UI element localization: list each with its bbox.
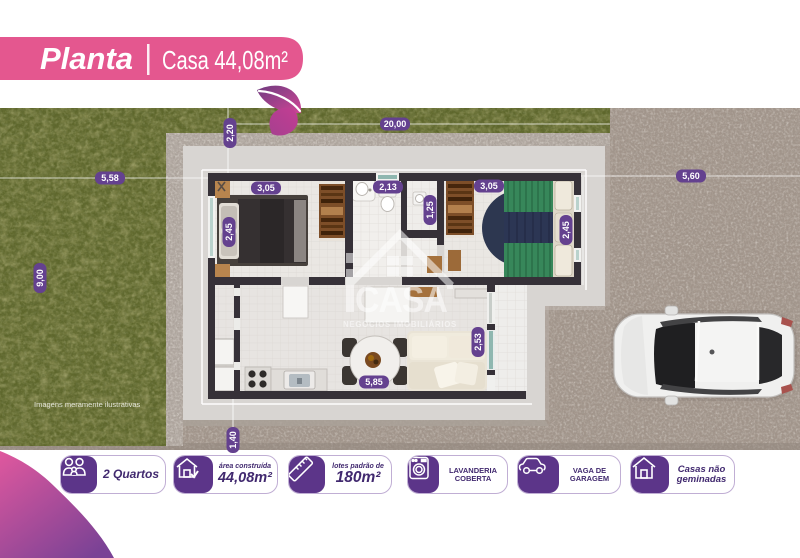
svg-text:NEGÓCIOS IMOBILIÁRIOS: NEGÓCIOS IMOBILIÁRIOS	[343, 318, 457, 329]
svg-text:5,85: 5,85	[365, 377, 383, 387]
svg-text:2,45: 2,45	[561, 221, 571, 239]
svg-text:1,25: 1,25	[425, 201, 435, 219]
svg-text:2,13: 2,13	[379, 182, 397, 192]
svg-text:1,40: 1,40	[228, 431, 238, 449]
svg-text:5,58: 5,58	[101, 173, 119, 183]
svg-text:3,05: 3,05	[480, 181, 498, 191]
svg-text:Casa 44,08m²: Casa 44,08m²	[162, 45, 288, 75]
svg-text:Planta: Planta	[40, 41, 133, 76]
svg-text:20,00: 20,00	[384, 119, 407, 129]
svg-text:9,00: 9,00	[35, 269, 45, 287]
svg-text:Imagens meramente ilustrativas: Imagens meramente ilustrativas	[34, 400, 141, 409]
svg-text:2,45: 2,45	[224, 223, 234, 241]
svg-text:2,53: 2,53	[473, 333, 483, 351]
svg-text:3,05: 3,05	[257, 183, 275, 193]
svg-text:5,60: 5,60	[682, 171, 700, 181]
svg-text:CASA: CASA	[355, 279, 448, 320]
svg-text:2,20: 2,20	[225, 124, 235, 142]
